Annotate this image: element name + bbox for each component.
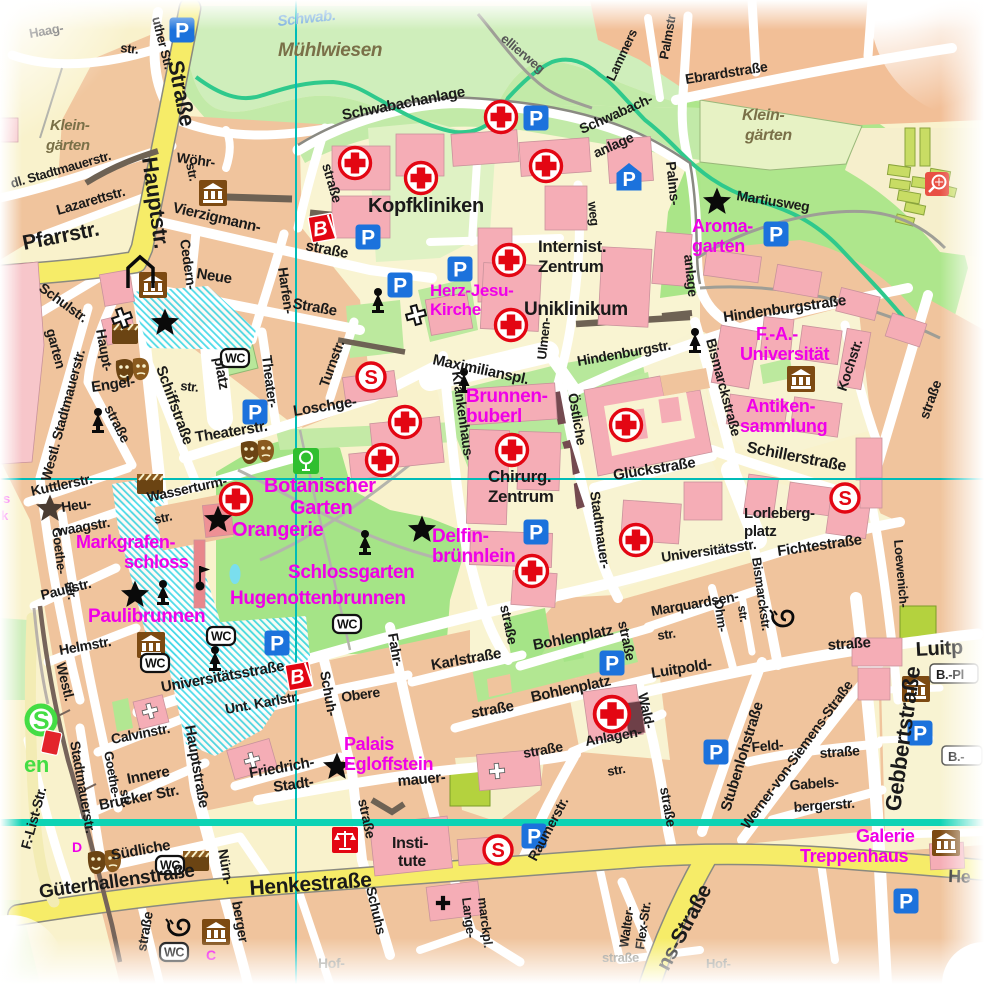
svg-text:garten: garten <box>692 236 745 256</box>
svg-text:str.: str. <box>735 604 751 622</box>
svg-text:Hugenottenbrunnen: Hugenottenbrunnen <box>230 588 406 609</box>
svg-text:Treppenhaus: Treppenhaus <box>800 846 909 866</box>
svg-text:Palais: Palais <box>344 734 394 754</box>
svg-text:Universität: Universität <box>740 344 830 364</box>
svg-text:Brunnen-: Brunnen- <box>466 386 548 407</box>
svg-text:schloss: schloss <box>124 552 189 572</box>
svg-text:str.: str. <box>656 626 676 643</box>
svg-text:str.: str. <box>180 378 200 395</box>
svg-text:straße: straße <box>819 742 861 761</box>
svg-text:Galerie: Galerie <box>856 826 915 846</box>
svg-text:str.: str. <box>606 761 626 779</box>
svg-text:Internist.: Internist. <box>538 237 606 256</box>
svg-text:Garten: Garten <box>290 497 352 519</box>
svg-text:Kopfkliniken: Kopfkliniken <box>368 195 484 217</box>
svg-text:F.-A.-: F.-A.- <box>756 324 798 344</box>
svg-text:Aroma-: Aroma- <box>692 216 753 236</box>
svg-text:Paulibrunnen: Paulibrunnen <box>88 606 205 627</box>
svg-text:Delfin-: Delfin- <box>432 526 489 547</box>
svg-text:sammlung: sammlung <box>740 416 827 436</box>
svg-text:Mühlwiesen: Mühlwiesen <box>278 40 382 61</box>
svg-text:en: en <box>24 752 49 777</box>
svg-text:Klein-: Klein- <box>742 107 784 124</box>
svg-text:Lorleberg-: Lorleberg- <box>744 505 815 522</box>
svg-text:brünnlein: brünnlein <box>432 546 515 567</box>
svg-text:straße: straße <box>827 634 871 654</box>
svg-text:Zentrum: Zentrum <box>538 257 604 276</box>
svg-text:Feld-: Feld- <box>751 736 785 755</box>
svg-text:Herz-Jesu-: Herz-Jesu- <box>430 281 513 300</box>
svg-text:Botanischer: Botanischer <box>264 475 376 497</box>
svg-text:Zentrum: Zentrum <box>488 487 554 506</box>
svg-text:Schlossgarten: Schlossgarten <box>288 562 414 583</box>
svg-text:Orangerie: Orangerie <box>232 519 324 541</box>
svg-text:Insti-: Insti- <box>392 835 428 852</box>
svg-text:tute: tute <box>398 853 426 870</box>
svg-text:Chirurg.: Chirurg. <box>488 467 551 486</box>
svg-text:Antiken-: Antiken- <box>746 396 816 416</box>
svg-text:buberl: buberl <box>466 406 522 427</box>
svg-text:Egloffstein: Egloffstein <box>344 754 433 774</box>
svg-text:gärten: gärten <box>744 127 792 144</box>
svg-text:Uniklinikum: Uniklinikum <box>524 299 628 320</box>
svg-text:P: P <box>623 169 636 191</box>
svg-text:weg: weg <box>585 200 603 227</box>
svg-text:D: D <box>72 839 82 855</box>
svg-text:Markgrafen-: Markgrafen- <box>76 532 176 552</box>
svg-text:Kirche: Kirche <box>430 300 481 319</box>
